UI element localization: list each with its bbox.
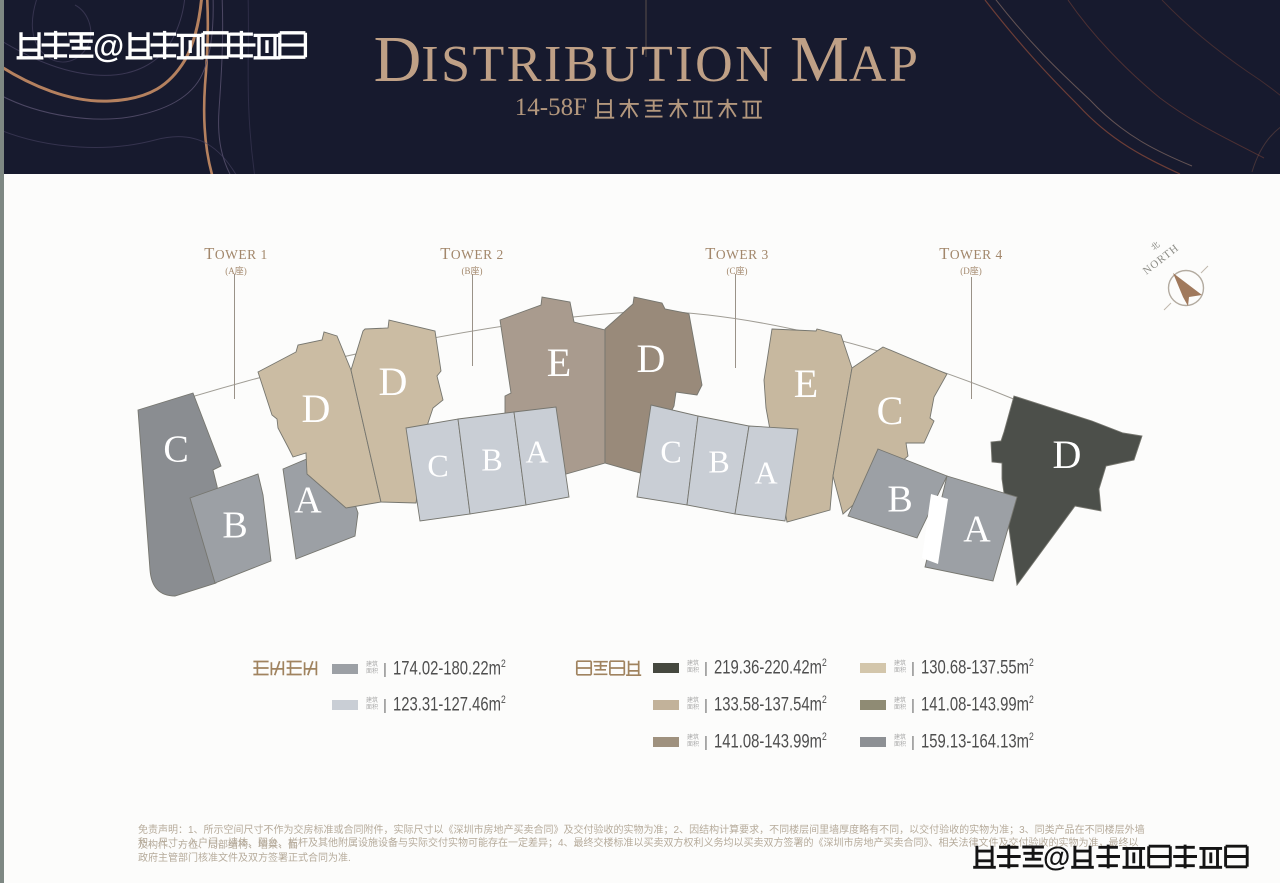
svg-text:B: B bbox=[481, 441, 502, 477]
svg-text:A: A bbox=[294, 480, 322, 522]
svg-text:B: B bbox=[222, 505, 247, 547]
svg-text:A: A bbox=[963, 509, 991, 551]
svg-text:E: E bbox=[547, 340, 571, 385]
svg-text:C: C bbox=[660, 433, 681, 469]
svg-text:D: D bbox=[379, 359, 408, 404]
svg-text:C: C bbox=[877, 388, 904, 433]
svg-text:@: @ bbox=[1043, 841, 1070, 872]
svg-text:D: D bbox=[1053, 432, 1082, 477]
svg-text:A: A bbox=[525, 433, 548, 469]
svg-text:A: A bbox=[754, 454, 777, 490]
svg-text:北: 北 bbox=[1150, 240, 1162, 252]
svg-text:B: B bbox=[887, 479, 912, 521]
svg-text:D: D bbox=[637, 336, 666, 381]
svg-text:@: @ bbox=[93, 28, 124, 64]
svg-text:B: B bbox=[708, 443, 729, 479]
svg-text:C: C bbox=[427, 447, 448, 483]
svg-text:D: D bbox=[302, 386, 331, 431]
svg-text:E: E bbox=[794, 361, 818, 406]
svg-text:C: C bbox=[163, 429, 188, 471]
